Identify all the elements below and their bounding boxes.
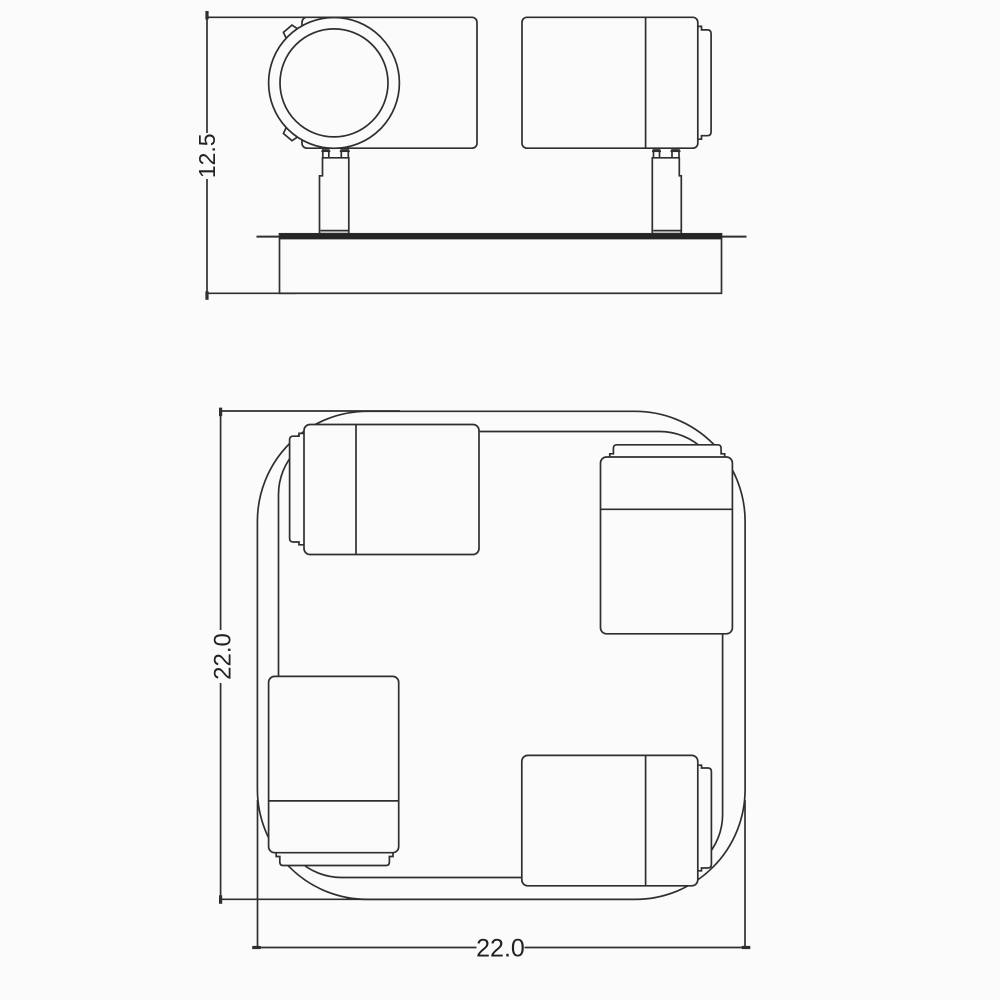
- svg-text:12.5: 12.5: [194, 133, 220, 178]
- svg-text:22.0: 22.0: [476, 935, 525, 963]
- svg-text:22.0: 22.0: [209, 633, 236, 680]
